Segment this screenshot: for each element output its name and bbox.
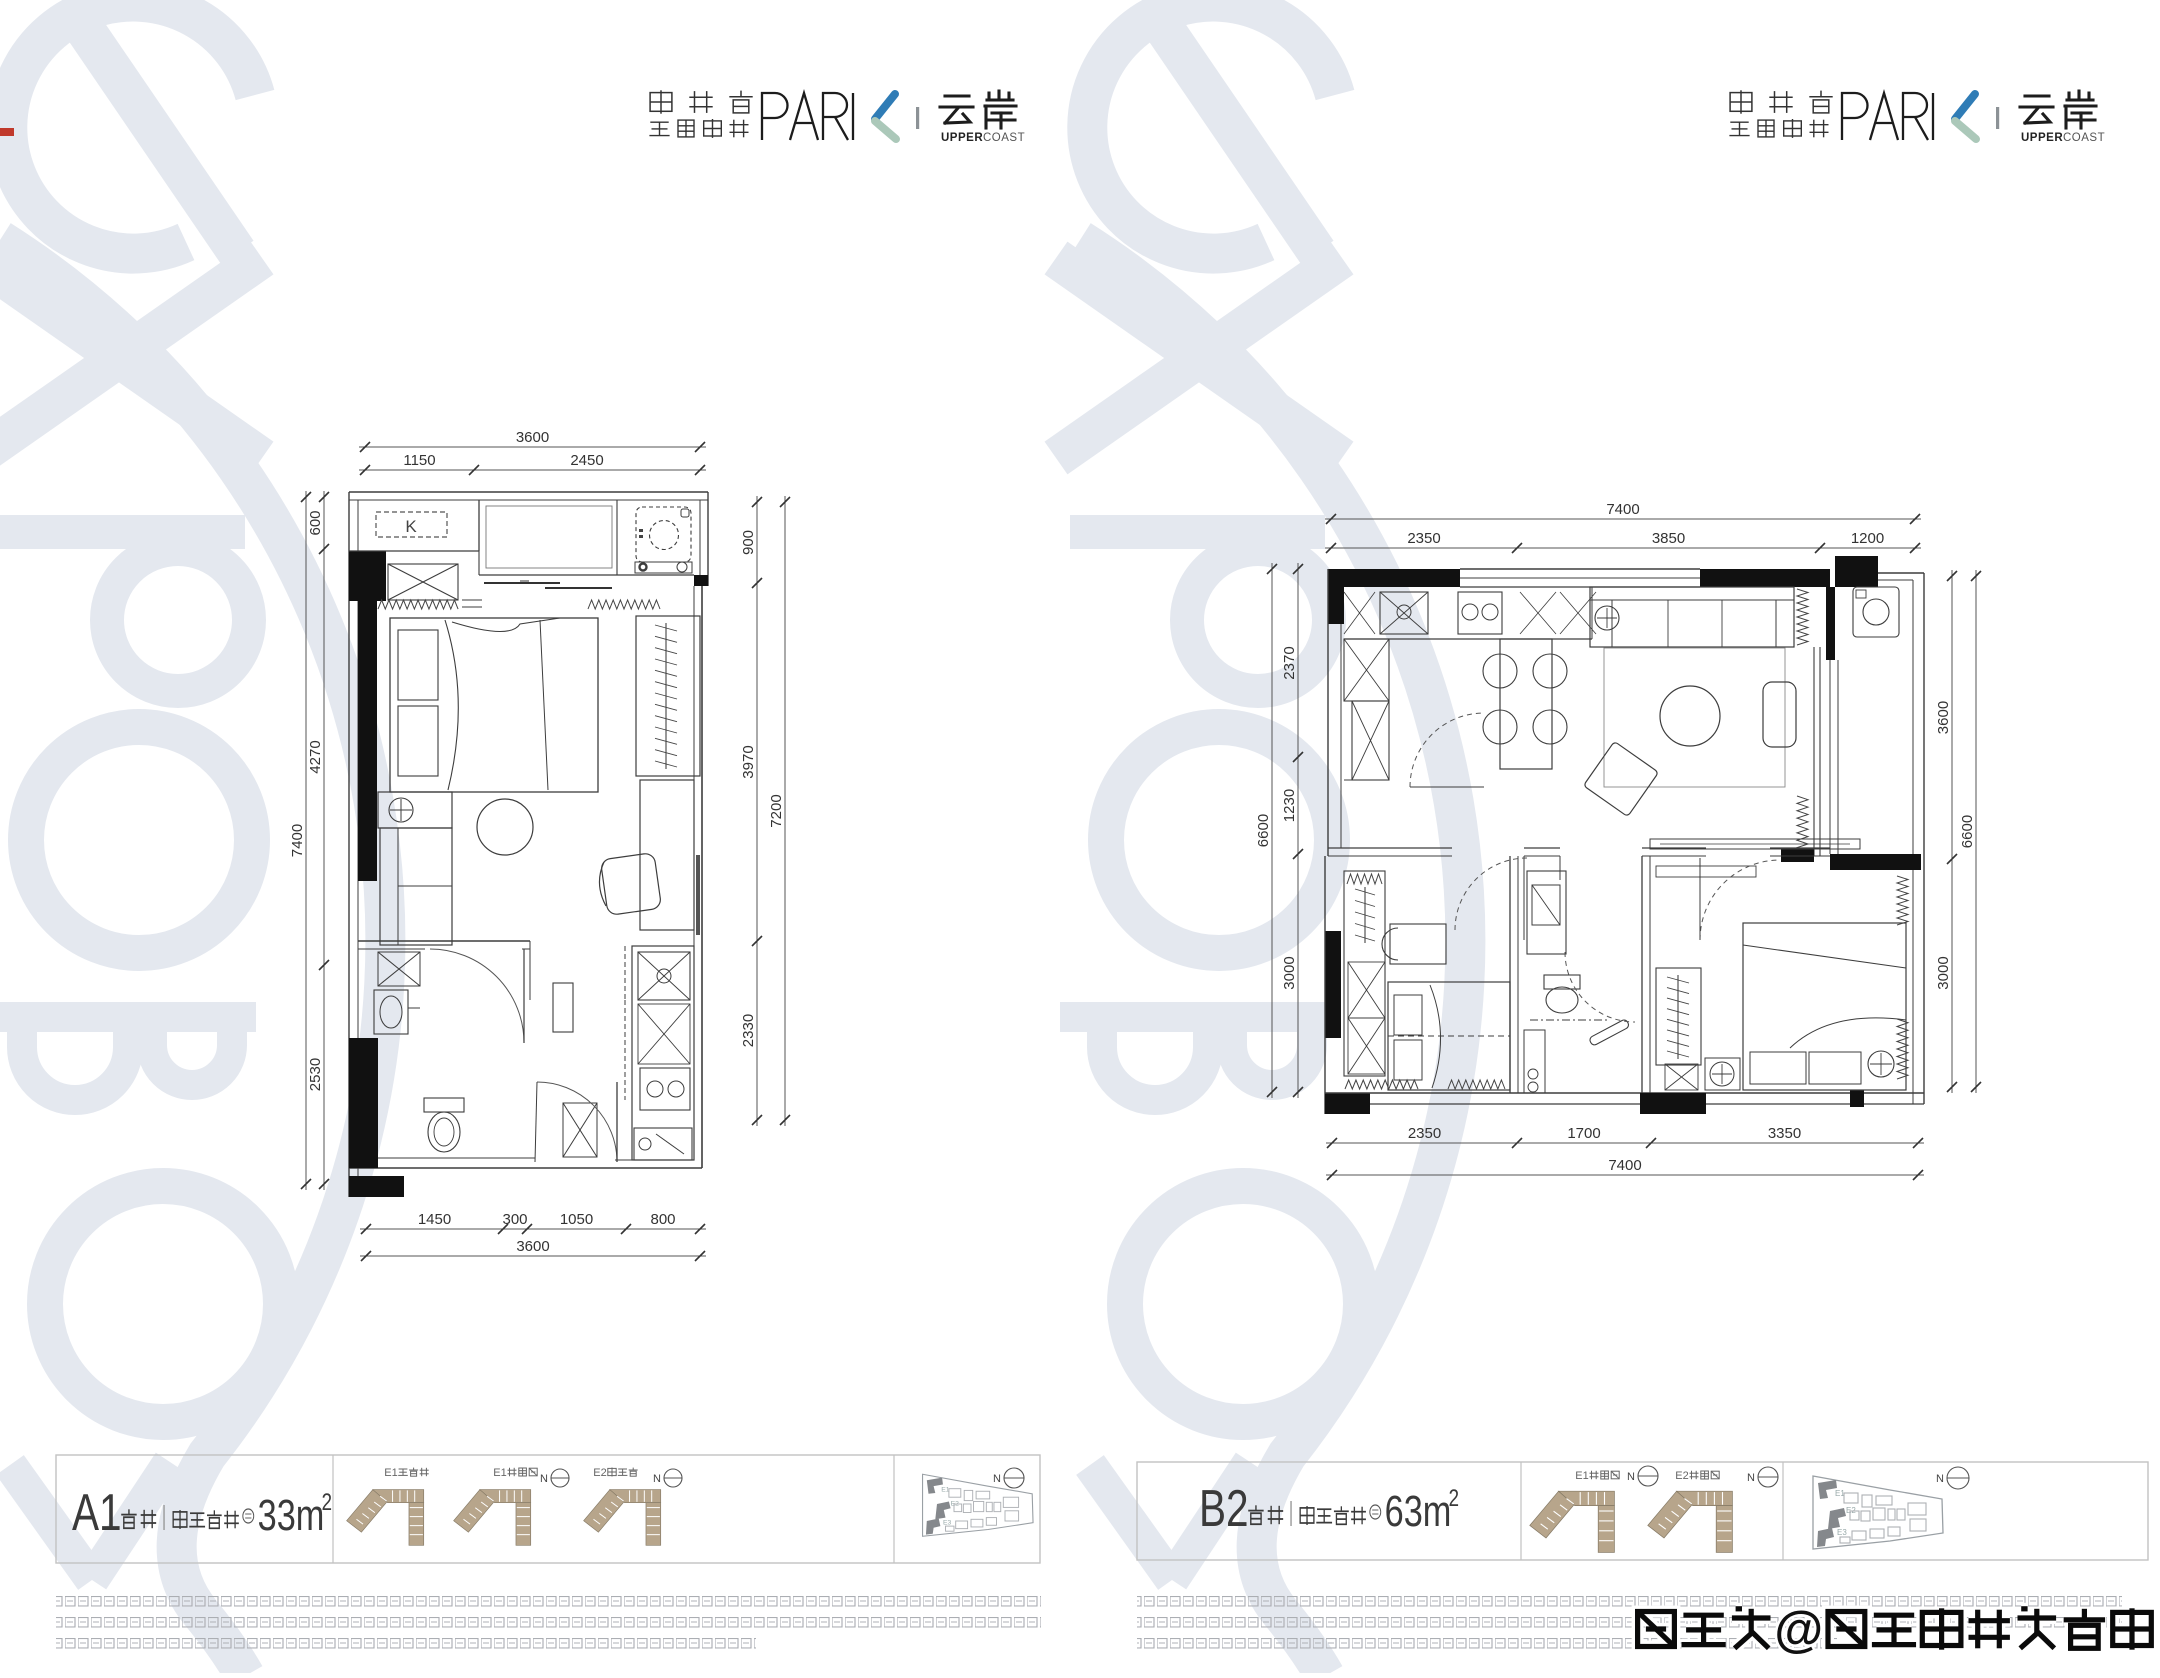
svg-text:4270: 4270 — [307, 740, 324, 773]
svg-text:K: K — [405, 517, 417, 536]
svg-text:600: 600 — [307, 510, 324, 535]
svg-text:UPPER: UPPER — [2021, 132, 2063, 144]
svg-text:N: N — [653, 1473, 661, 1485]
svg-text:3000: 3000 — [1935, 956, 1952, 989]
svg-text:1050: 1050 — [560, 1211, 593, 1228]
svg-text:E2: E2 — [593, 1467, 606, 1479]
svg-text:3350: 3350 — [1768, 1125, 1801, 1142]
svg-text:COAST: COAST — [2063, 132, 2105, 144]
svg-text:7400: 7400 — [1606, 501, 1639, 518]
svg-text:3000: 3000 — [1281, 956, 1298, 989]
svg-text:N: N — [1747, 1472, 1755, 1484]
svg-text:7200: 7200 — [768, 794, 785, 827]
svg-text:2330: 2330 — [740, 1014, 757, 1047]
svg-text:E1: E1 — [384, 1467, 397, 1479]
svg-text:COAST: COAST — [983, 132, 1025, 144]
svg-text:3850: 3850 — [1652, 530, 1685, 547]
svg-text:7400: 7400 — [289, 824, 306, 857]
svg-text:2530: 2530 — [307, 1058, 324, 1091]
svg-text:2450: 2450 — [570, 452, 603, 469]
svg-text:3600: 3600 — [516, 1238, 549, 1255]
svg-text:2350: 2350 — [1407, 530, 1440, 547]
svg-text:1200: 1200 — [1851, 530, 1884, 547]
svg-text:E3: E3 — [1837, 1528, 1847, 1537]
svg-text:N: N — [993, 1473, 1001, 1485]
svg-text:1700: 1700 — [1567, 1125, 1600, 1142]
svg-text:B2: B2 — [1199, 1479, 1249, 1537]
svg-text:900: 900 — [740, 530, 757, 555]
svg-text:E3: E3 — [943, 1519, 952, 1526]
svg-text:1230: 1230 — [1281, 789, 1298, 822]
svg-text:E1: E1 — [493, 1467, 506, 1479]
svg-text:3600: 3600 — [516, 429, 549, 446]
svg-text:2350: 2350 — [1408, 1125, 1441, 1142]
svg-text:N: N — [1936, 1473, 1944, 1485]
svg-text:E1: E1 — [1575, 1470, 1588, 1482]
svg-text:2370: 2370 — [1281, 646, 1298, 679]
svg-text:7400: 7400 — [1608, 1157, 1641, 1174]
svg-text:N: N — [540, 1473, 548, 1485]
svg-text:1450: 1450 — [418, 1211, 451, 1228]
svg-text:N: N — [1627, 1471, 1635, 1483]
svg-text:1150: 1150 — [403, 452, 435, 469]
svg-text:E2: E2 — [1675, 1470, 1688, 1482]
svg-text:300: 300 — [502, 1211, 527, 1228]
svg-text:33m: 33m — [258, 1491, 325, 1540]
svg-text:6600: 6600 — [1959, 815, 1976, 848]
svg-text:63m: 63m — [1385, 1487, 1452, 1536]
svg-text:6600: 6600 — [1255, 814, 1272, 847]
svg-text:@: @ — [1774, 1601, 1823, 1657]
svg-text:UPPER: UPPER — [941, 132, 983, 144]
svg-text:A1: A1 — [72, 1483, 122, 1541]
svg-text:800: 800 — [650, 1211, 675, 1228]
svg-text:3600: 3600 — [1935, 701, 1952, 734]
svg-text:2: 2 — [322, 1489, 332, 1516]
svg-text:2: 2 — [1449, 1485, 1459, 1512]
svg-text:3970: 3970 — [740, 745, 757, 778]
